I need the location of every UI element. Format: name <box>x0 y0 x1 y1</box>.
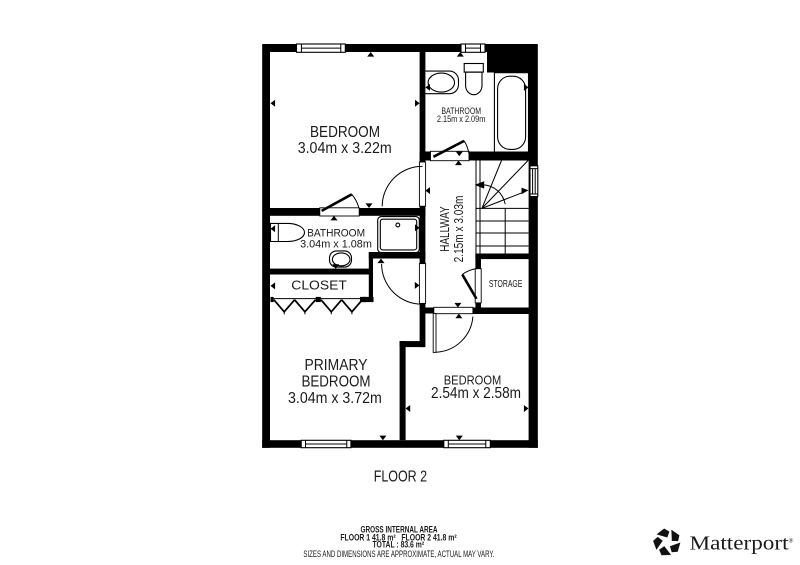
svg-text:PRIMARY: PRIMARY <box>305 357 368 374</box>
svg-text:Matterport: Matterport <box>690 533 790 554</box>
svg-text:2.15m x 3.03m: 2.15m x 3.03m <box>451 196 466 263</box>
svg-text:BEDROOM: BEDROOM <box>310 124 380 141</box>
svg-text:FLOOR 2: FLOOR 2 <box>374 468 427 485</box>
svg-text:STORAGE: STORAGE <box>489 279 523 290</box>
svg-text:HALLWAY: HALLWAY <box>437 206 452 252</box>
svg-text:3.04m x 1.08m: 3.04m x 1.08m <box>300 238 372 250</box>
svg-text:2.54m x 2.58m: 2.54m x 2.58m <box>431 385 521 402</box>
svg-text:CLOSET: CLOSET <box>291 278 347 293</box>
svg-text:3.04m x 3.22m: 3.04m x 3.22m <box>298 140 392 157</box>
svg-text:2.15m x 2.09m: 2.15m x 2.09m <box>437 114 485 124</box>
svg-text:SIZES AND DIMENSIONS ARE APPRO: SIZES AND DIMENSIONS ARE APPROXIMATE, AC… <box>303 549 494 559</box>
svg-text:3.04m x 3.72m: 3.04m x 3.72m <box>288 390 382 407</box>
svg-text:®: ® <box>789 538 794 545</box>
svg-text:BEDROOM: BEDROOM <box>301 374 370 391</box>
